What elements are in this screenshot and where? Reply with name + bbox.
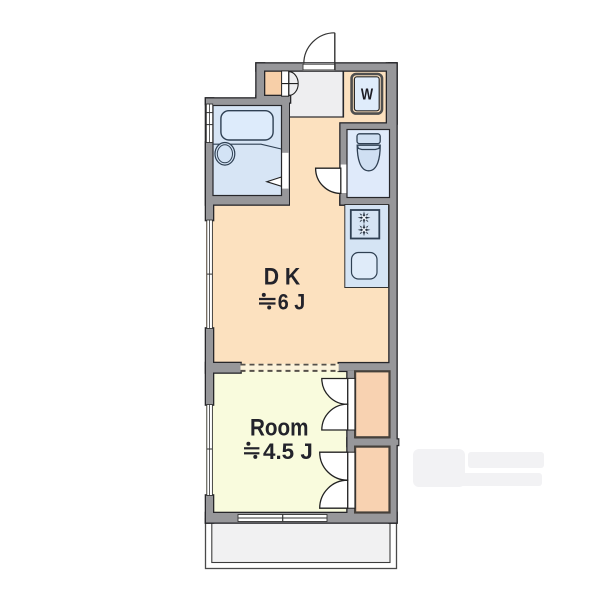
svg-text:Room: Room xyxy=(250,415,309,442)
svg-text:6 J: 6 J xyxy=(278,289,305,314)
svg-text:W: W xyxy=(361,87,374,104)
svg-text:D K: D K xyxy=(264,264,301,291)
svg-text:4.5 J: 4.5 J xyxy=(263,439,313,464)
